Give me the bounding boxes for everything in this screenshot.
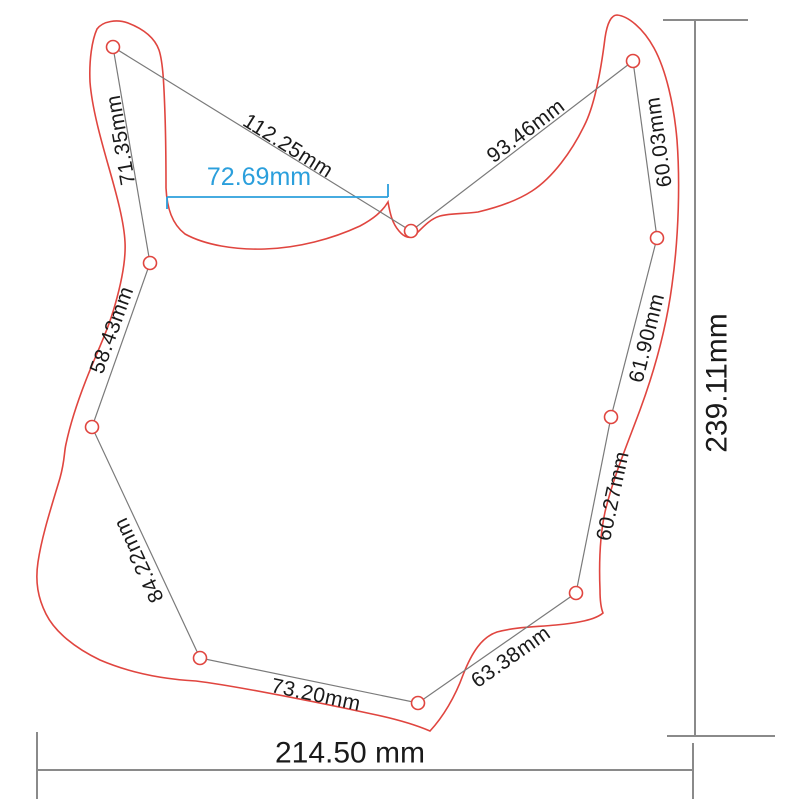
screw-hole [405,225,418,238]
screw-hole [605,411,618,424]
segment-labels: 112.25mm 93.46mm 60.03mm 61.90mm 60.27mm… [86,93,677,716]
screw-hole [627,55,640,68]
measurement-lines [92,47,657,703]
pickguard-outline-path [37,15,679,731]
dimension-drawing: 112.25mm 93.46mm 60.03mm 61.90mm 60.27mm… [0,0,800,800]
overall-width-label: 214.50 mm [275,737,425,770]
overall-height-label: 239.11mm [701,313,734,453]
segment-label-63-38: 63.38mm [467,621,555,692]
segment-label-71-35: 71.35mm [102,93,140,187]
hole-spacing-polyline [92,47,657,703]
pickguard-dimension-svg: 112.25mm 93.46mm 60.03mm 61.90mm 60.27mm… [0,0,800,800]
screw-hole [107,41,120,54]
segment-label-93-46: 93.46mm [483,94,570,167]
segment-label-58-43: 58.43mm [86,283,139,376]
screw-hole [412,697,425,710]
pickguard-outline [37,15,679,731]
segment-label-60-27: 60.27mm [592,449,633,543]
screw-hole [86,421,99,434]
screw-hole [570,587,583,600]
notch-width-label: 72.69mm [207,163,311,191]
screw-hole [144,257,157,270]
screw-hole [194,652,207,665]
segment-label-60-03: 60.03mm [641,95,676,188]
screw-hole [651,232,664,245]
segment-label-73-20: 73.20mm [269,674,363,715]
